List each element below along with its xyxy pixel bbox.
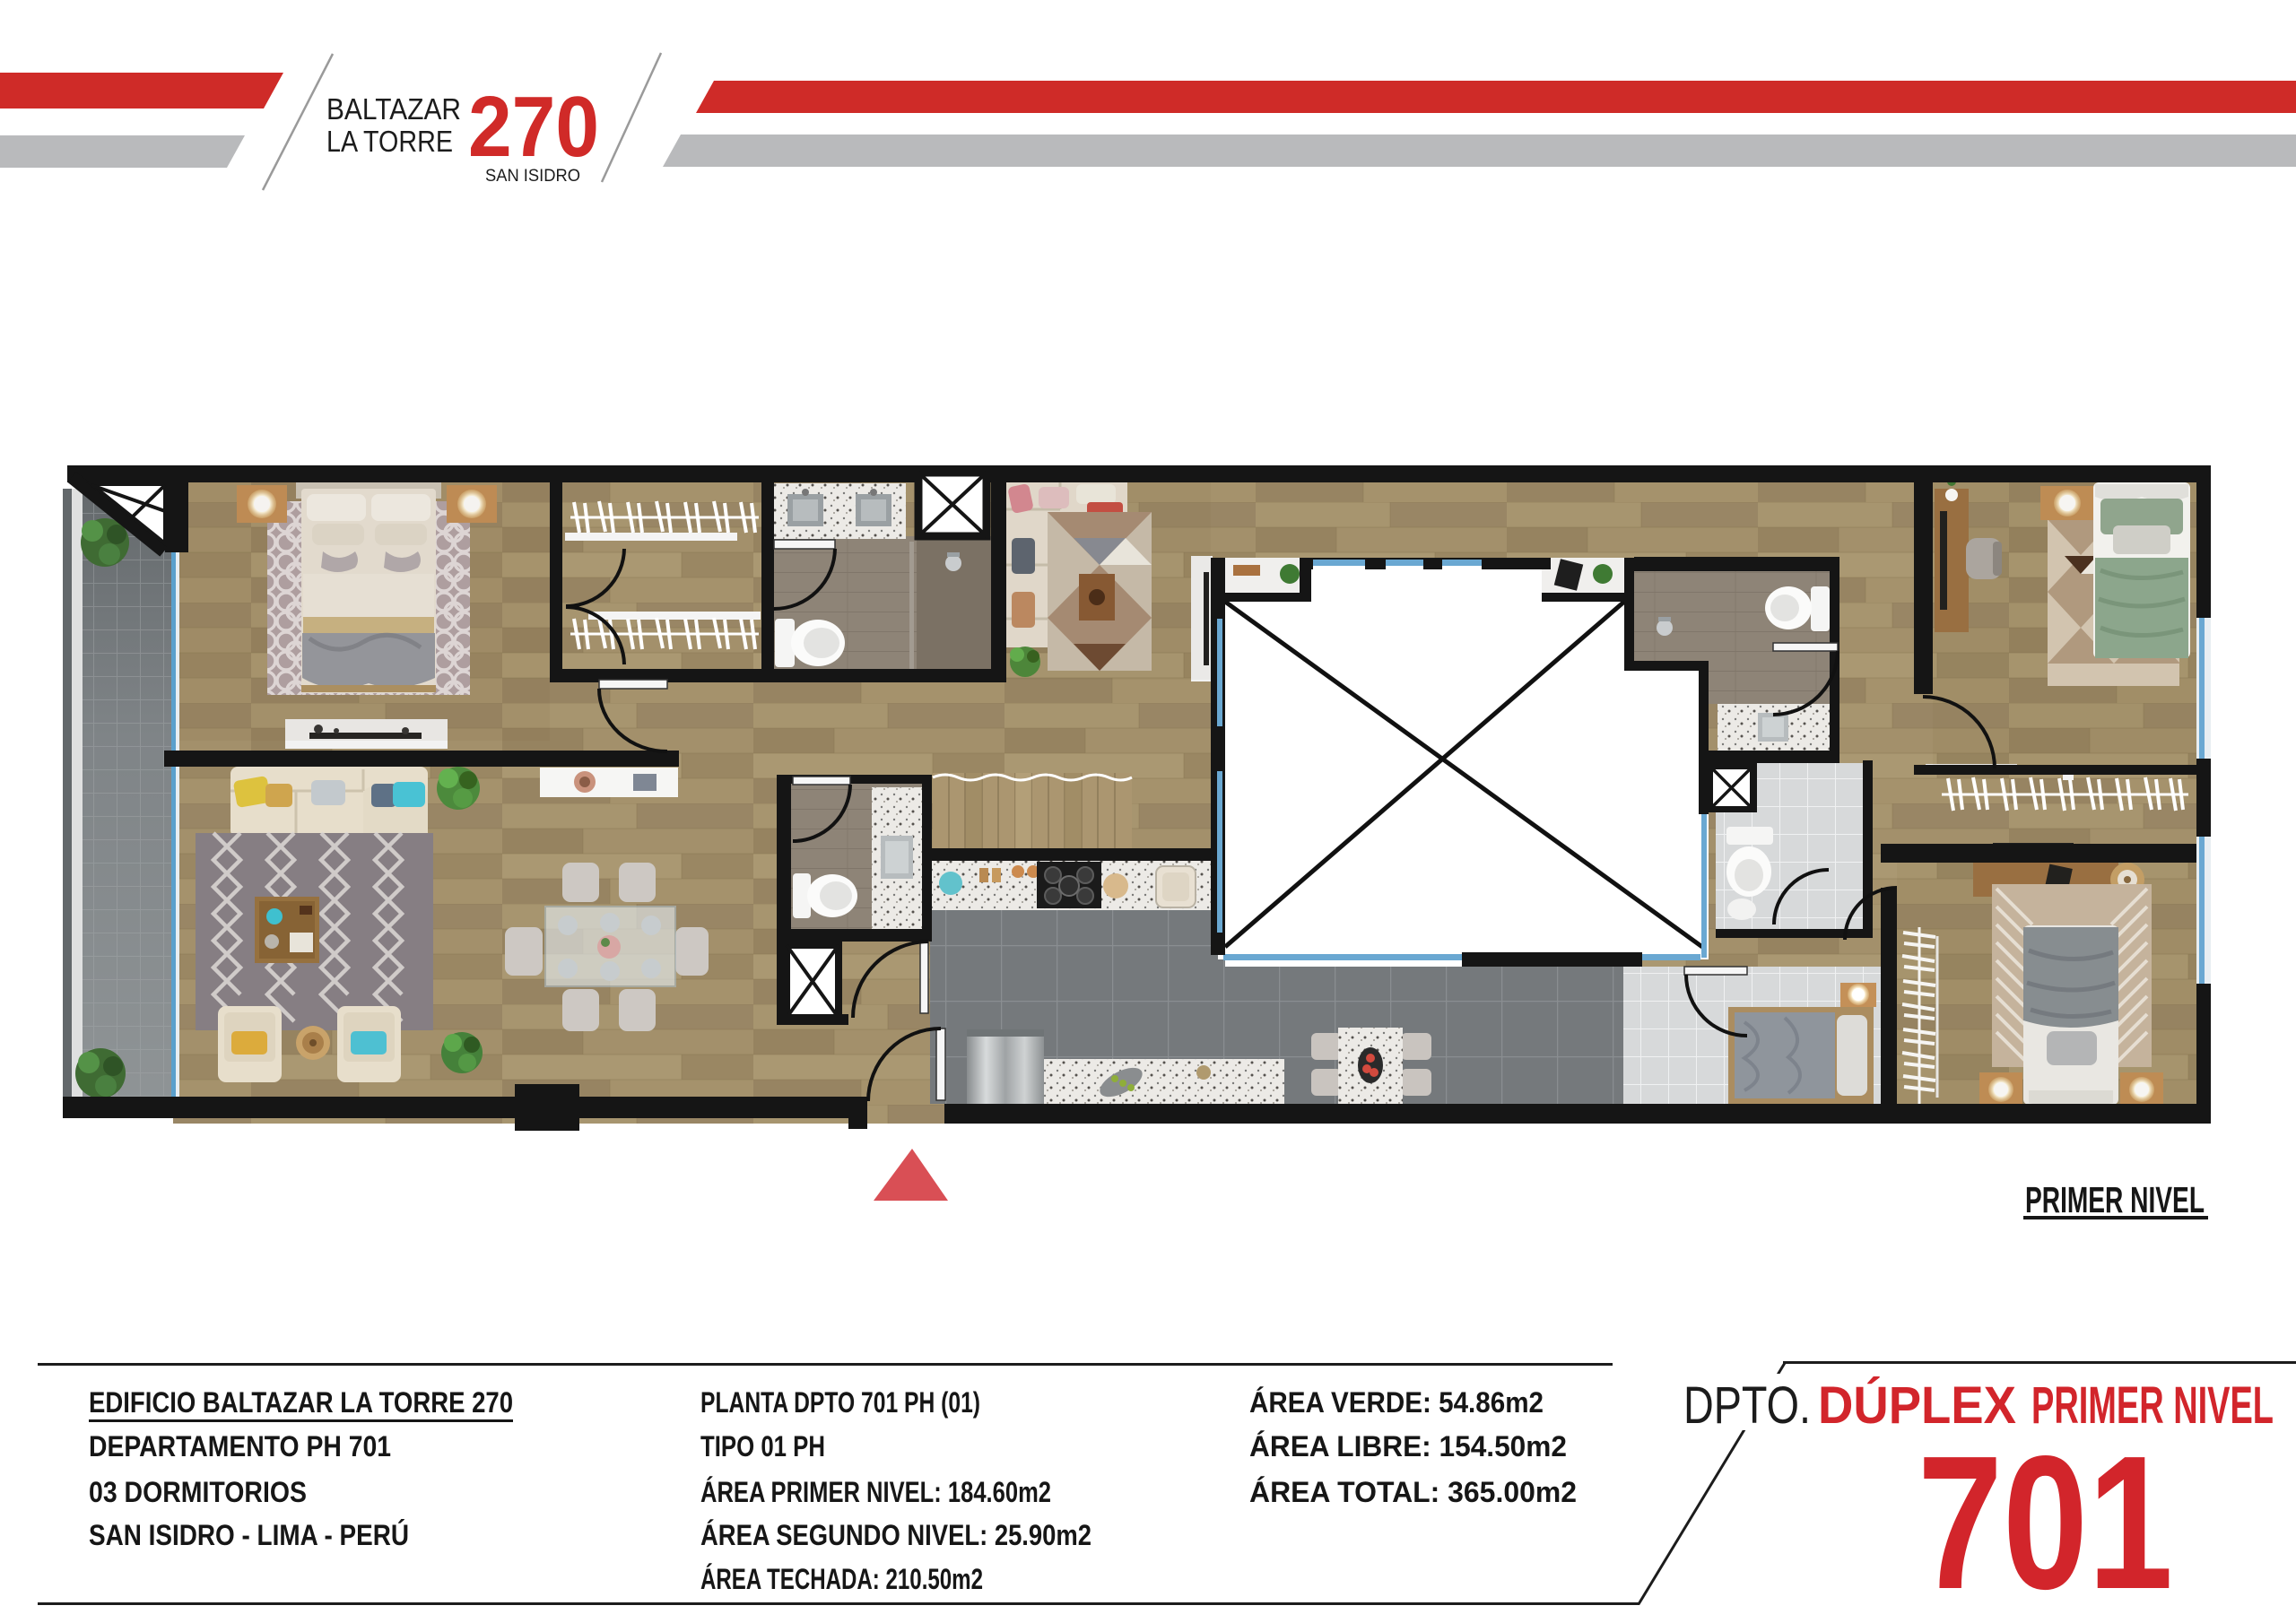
- svg-text:701: 701: [1918, 1416, 2173, 1623]
- svg-text:PRIMER NIVEL: PRIMER NIVEL: [2025, 1179, 2205, 1220]
- svg-text:BALTAZAR: BALTAZAR: [326, 92, 461, 126]
- svg-text:ÁREA SEGUNDO NIVEL: 25.90m2: ÁREA SEGUNDO NIVEL: 25.90m2: [700, 1519, 1091, 1551]
- svg-text:PLANTA DPTO 701 PH (01): PLANTA DPTO 701 PH (01): [700, 1386, 980, 1419]
- svg-text:ÁREA PRIMER NIVEL: 184.60m2: ÁREA PRIMER NIVEL: 184.60m2: [700, 1476, 1051, 1508]
- svg-text:ÁREA LIBRE: 154.50m2: ÁREA LIBRE: 154.50m2: [1249, 1430, 1567, 1462]
- svg-text:270: 270: [468, 79, 599, 175]
- svg-text:DPTO.: DPTO.: [1683, 1376, 1811, 1435]
- svg-text:EDIFICIO BALTAZAR LA TORRE 270: EDIFICIO BALTAZAR LA TORRE 270: [89, 1386, 513, 1419]
- svg-text:03 DORMITORIOS: 03 DORMITORIOS: [89, 1476, 307, 1508]
- svg-text:SAN ISIDRO: SAN ISIDRO: [485, 167, 580, 186]
- svg-text:ÁREA TECHADA: 210.50m2: ÁREA TECHADA: 210.50m2: [700, 1563, 983, 1595]
- svg-text:ÁREA TOTAL: 365.00m2: ÁREA TOTAL: 365.00m2: [1249, 1476, 1577, 1508]
- svg-text:ÁREA VERDE: 54.86m2: ÁREA VERDE: 54.86m2: [1249, 1386, 1544, 1419]
- svg-text:SAN ISIDRO - LIMA - PERÚ: SAN ISIDRO - LIMA - PERÚ: [89, 1519, 409, 1551]
- svg-text:LA TORRE: LA TORRE: [326, 125, 453, 158]
- svg-text:DEPARTAMENTO PH 701: DEPARTAMENTO PH 701: [89, 1430, 391, 1462]
- svg-text:TIPO 01 PH: TIPO 01 PH: [700, 1430, 825, 1462]
